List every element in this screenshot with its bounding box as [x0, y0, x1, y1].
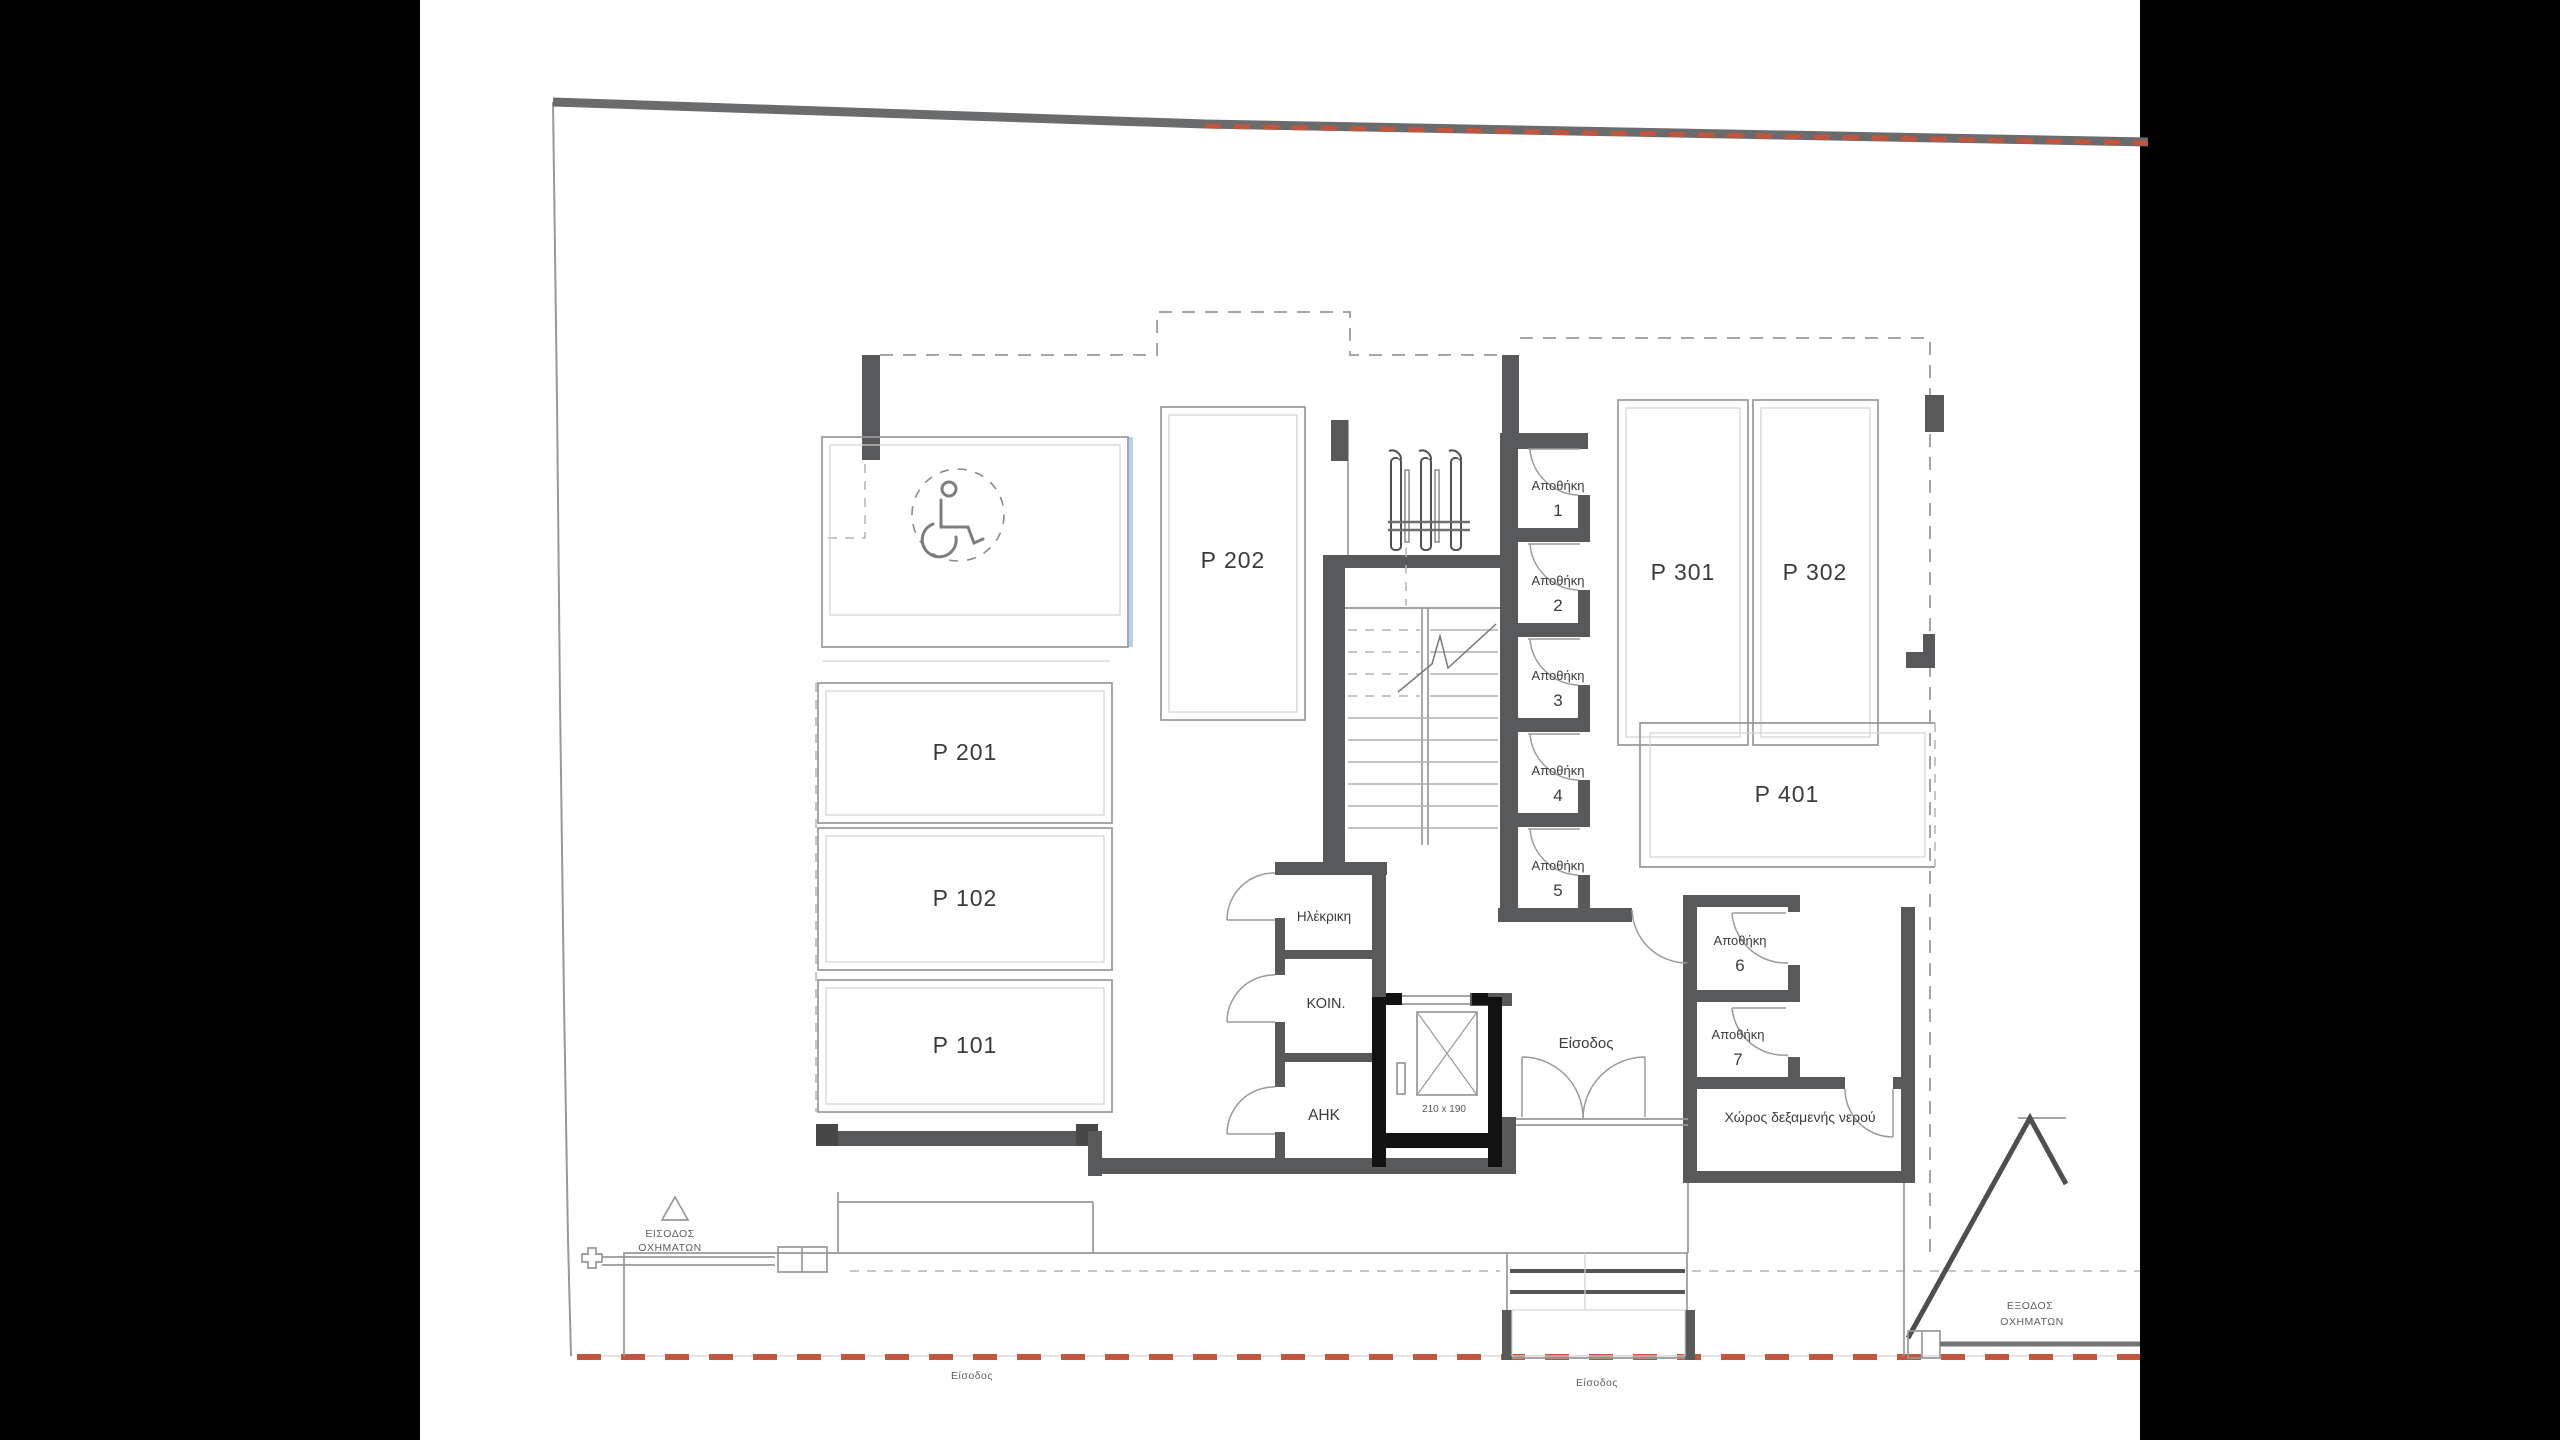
communal-room-door: [1227, 975, 1275, 1022]
entrance-jamb-left: [1502, 1117, 1516, 1162]
steps-wall-left: [1502, 1310, 1512, 1360]
electrical-room-door: [1227, 873, 1275, 920]
storage6-right-wall: [1788, 965, 1800, 1002]
elevator-stub-left: [1386, 993, 1402, 1005]
storage1-right-wall: [1578, 495, 1590, 528]
steps-inner: [1512, 1310, 1685, 1356]
stair-top-wall: [1323, 555, 1518, 568]
storage-7-label: Αποθήκη: [1712, 1027, 1765, 1042]
gate-hinge-icon: [582, 1248, 602, 1268]
rooms-left-wall-a: [1275, 918, 1285, 975]
building-dashed-outline: [816, 312, 1502, 1112]
elevator-left-wall-upper: [1372, 863, 1386, 997]
elevator-car-x: [1417, 1012, 1477, 1095]
entrance-door-right: [1583, 1057, 1645, 1118]
vehicle-entrance-label-2: ΟΧΗΜΑΤΩΝ: [638, 1242, 701, 1254]
boundary-left-line: [553, 102, 571, 1356]
elevator-stub-right: [1472, 993, 1488, 1005]
room-label-power: ΑΗΚ: [1308, 1107, 1341, 1124]
wheelchair-head: [942, 482, 956, 496]
gate-arm: [602, 1257, 775, 1265]
room-label-water-tank: Χώρος δεξαμενής νερού: [1724, 1109, 1875, 1125]
boundary-top-wall: [553, 102, 2148, 142]
entrance-triangle-icon: [662, 1197, 688, 1220]
curb-line: [624, 1253, 1507, 1356]
room-divider-1: [1285, 950, 1372, 959]
parking-bay-p201: P 201: [818, 683, 1112, 823]
dashed-niche: [822, 447, 865, 538]
storage-left-wall: [1500, 433, 1518, 922]
entrance-south-label: Είσοδος: [1576, 1377, 1618, 1389]
bike-racks: [1388, 450, 1470, 550]
elevator-door-sill: [1402, 996, 1470, 1004]
entrance-threshold: [1516, 1119, 1688, 1125]
water-tank-room: Χώρος δεξαμενής νερού: [1724, 1089, 1893, 1137]
storage1-top-wall: [1500, 433, 1588, 449]
parking-bay-p302: P 302: [1753, 400, 1878, 745]
storage-divider-6-7: [1697, 990, 1788, 1002]
storage-7-number: 7: [1733, 1050, 1742, 1069]
exterior-steps: Είσοδος: [1502, 1253, 1695, 1389]
storage-6-label: Αποθήκη: [1714, 933, 1767, 948]
storage-divider-3-4: [1500, 718, 1590, 732]
entrance-west-label: Είσοδος: [951, 1370, 993, 1382]
stairs: [1345, 548, 1500, 845]
elevator-door-slit: [1397, 1063, 1405, 1094]
stair-treads-lower: [1348, 718, 1498, 828]
forecourt-outline: [838, 1192, 1093, 1253]
stair-treads-upper: [1430, 630, 1498, 696]
column-e-foot: [1906, 652, 1935, 668]
vehicle-exit-label-2: ΟΧΗΜΑΤΩΝ: [2000, 1316, 2063, 1328]
storage7-right-wall: [1788, 1057, 1800, 1089]
vehicle-exit: ΕΞΟΔΟΣ ΟΧΗΜΑΤΩΝ: [1908, 1118, 2140, 1358]
wheelchair-wheel: [922, 524, 956, 557]
floor-plan: 210 x 190: [0, 0, 2560, 1440]
storage-4-number: 4: [1553, 786, 1562, 805]
parking-bay-p301: P 301: [1618, 400, 1748, 745]
parking-label-p201: P 201: [933, 739, 998, 765]
exit-gate-post: [1908, 1331, 1940, 1358]
elevator-shaft-bottom: [1372, 1133, 1502, 1148]
vehicle-exit-label-1: ΕΞΟΔΟΣ: [2007, 1300, 2053, 1312]
stair-break-line: [1398, 624, 1496, 692]
utility-rooms: Ηλέκρικη ΚΟΙΝ. ΑΗΚ: [1227, 873, 1351, 1134]
south-column-1: [816, 1124, 838, 1146]
steps-wall-right: [1685, 1310, 1695, 1360]
south-wall-east: [1683, 1171, 1915, 1183]
rooms-left-wall-b: [1275, 1022, 1285, 1087]
storage67-left-wall: [1683, 895, 1697, 1183]
storage-5-label: Αποθήκη: [1532, 858, 1585, 873]
entrance-label: Είσοδος: [1559, 1035, 1614, 1052]
storage3-right-wall: [1578, 685, 1590, 718]
column-nw: [862, 355, 880, 460]
room-label-communal: ΚΟΙΝ.: [1306, 996, 1345, 1012]
storage-divider-2-3: [1500, 623, 1590, 637]
stair-divider: [1422, 608, 1428, 845]
storage-3-number: 3: [1553, 691, 1562, 710]
column-ne: [1925, 395, 1944, 432]
south-wall-center: [1096, 1158, 1516, 1174]
steps-outline: [1507, 1253, 1687, 1358]
parking-label-p301: P 301: [1651, 559, 1716, 585]
parking-bay-p101: P 101: [818, 980, 1112, 1112]
parking-bay-p202: P 202: [1161, 407, 1305, 720]
dashed-outline-top: [880, 312, 1502, 355]
stair-treads-dashed: [1348, 630, 1420, 696]
storage6-top-wall: [1683, 895, 1790, 907]
bike-rack-1: [1391, 458, 1401, 550]
column-storage-top: [1502, 355, 1519, 433]
parking-label-p102: P 102: [933, 885, 998, 911]
elevator: 210 x 190: [1372, 993, 1502, 1167]
room-divider-2: [1285, 1053, 1372, 1062]
rooms-top-wall: [1275, 862, 1387, 875]
storage-1-label: Αποθήκη: [1532, 478, 1585, 493]
accessible-bay-inner: [830, 445, 1120, 615]
entrance-door-left: [1522, 1057, 1583, 1118]
storage6-right-jamb: [1788, 895, 1800, 912]
watertank-top-wall-a: [1697, 1077, 1845, 1089]
wheelchair-icon: [912, 469, 1004, 561]
wheelchair-body: [941, 500, 983, 543]
screenshot-stage: 210 x 190: [0, 0, 2560, 1440]
storage-divider-1-2: [1500, 528, 1590, 542]
elevator-size-label: 210 x 190: [1422, 1104, 1466, 1115]
parking-label-p401: P 401: [1755, 781, 1820, 807]
main-entrance: Είσοδος: [1516, 1035, 1688, 1125]
south-wall-west: [818, 1131, 1100, 1146]
parking-label-p202: P 202: [1201, 547, 1266, 573]
power-room-door: [1227, 1087, 1275, 1134]
bike-rack-3: [1451, 458, 1461, 550]
storage5-bottom-wall: [1498, 908, 1632, 922]
storage-2-number: 2: [1553, 596, 1562, 615]
parking-label-p101: P 101: [933, 1032, 998, 1058]
parking-bay-p102: P 102: [818, 828, 1112, 970]
column-top-center: [1331, 420, 1348, 461]
vehicle-entrance-label-1: ΕΙΣΟΔΟΣ: [645, 1228, 694, 1240]
storage-2-label: Αποθήκη: [1532, 573, 1585, 588]
storage-5-number: 5: [1553, 881, 1562, 900]
stair-left-wall: [1323, 555, 1345, 863]
storage-3-label: Αποθήκη: [1532, 668, 1585, 683]
wheelchair-dashed-circle: [912, 469, 1004, 561]
storage2-right-wall: [1578, 590, 1590, 623]
storage-1-number: 1: [1553, 501, 1562, 520]
storage-divider-4-5: [1500, 813, 1590, 827]
parking-bay-accessible: [822, 437, 1131, 661]
storage4-right-wall: [1578, 780, 1590, 813]
storage5-right-wall: [1578, 875, 1590, 908]
steps-treads: [1510, 1271, 1685, 1292]
east-wall: [1901, 907, 1915, 1183]
rooms-left-jamb-1: [1275, 862, 1285, 874]
corridor-door: [1632, 910, 1687, 963]
storage-6-number: 6: [1735, 956, 1744, 975]
storage-4-label: Αποθήκη: [1532, 763, 1585, 778]
bike-rack-2: [1421, 458, 1431, 550]
parking-label-p302: P 302: [1783, 559, 1848, 585]
room-label-electrical: Ηλέκρικη: [1297, 909, 1351, 924]
